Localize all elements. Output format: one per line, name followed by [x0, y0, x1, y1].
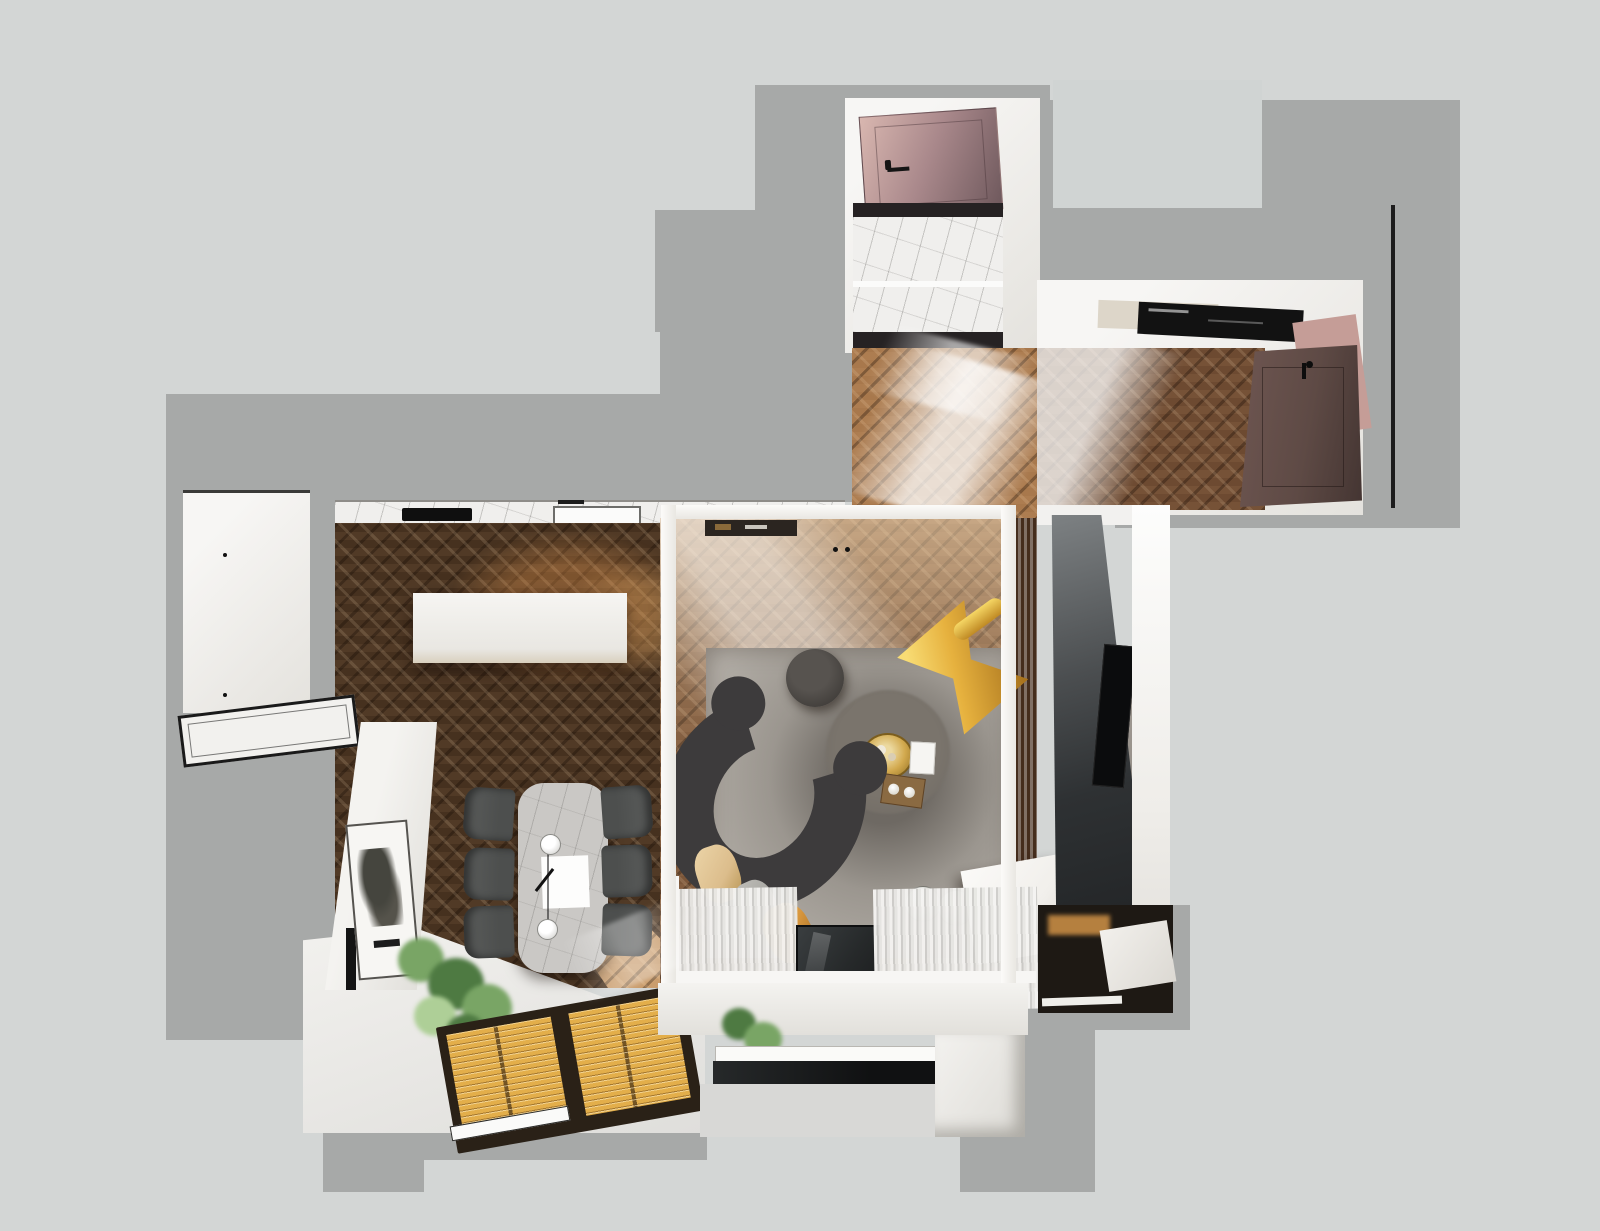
- entry-hall-floor: [852, 348, 1037, 520]
- hallway-floor: [1037, 348, 1265, 510]
- wall-mass-step1: [660, 330, 852, 396]
- balcony-right-wall: [935, 1035, 1025, 1137]
- wall-light-patch: [1053, 80, 1262, 208]
- glass-partition-top: [661, 505, 1016, 519]
- cabinet-shelf-edge: [1042, 996, 1122, 1007]
- wall-art-print: [356, 847, 405, 928]
- door-panel-line: [874, 119, 987, 206]
- dining-chair: [463, 847, 515, 901]
- candle: [887, 783, 899, 795]
- wall-column-right: [1363, 295, 1460, 515]
- door-handle-dot: [885, 160, 892, 170]
- floor-dot: [845, 547, 850, 552]
- sideboard: [705, 520, 797, 536]
- wall-edge-line: [1391, 205, 1395, 520]
- glass-partition-right: [1001, 505, 1016, 988]
- faucet-icon: [558, 500, 584, 504]
- wall-column-balcony2: [1048, 1030, 1095, 1140]
- cooktop: [402, 508, 472, 521]
- sideboard-decor: [715, 524, 731, 530]
- glass-partition-left: [661, 505, 676, 988]
- sun-streak: [1037, 348, 1205, 510]
- coffee-table-book: [909, 741, 936, 774]
- sun-streak: [852, 348, 1037, 520]
- storage-reflection: [1208, 319, 1263, 324]
- kitchen-left-wall: [183, 490, 310, 713]
- wall-dot: [223, 693, 227, 697]
- door-panel-line: [1262, 367, 1344, 487]
- dining-chair: [463, 905, 515, 959]
- pendant-lamp-globe: [537, 919, 558, 940]
- balcony-wall-band: [658, 983, 1028, 1035]
- marble-threshold-bottom: [853, 332, 1003, 348]
- bathroom-door: [859, 107, 1004, 218]
- dining-chair: [601, 903, 653, 957]
- entrance-door: [1240, 345, 1362, 507]
- candle: [903, 786, 915, 798]
- dining-chair: [462, 786, 516, 841]
- shower-lip: [853, 281, 1003, 287]
- wall-mass-step3: [755, 85, 852, 212]
- storage-reflection: [1148, 308, 1188, 313]
- wall-step-bottom-left: [323, 1157, 424, 1192]
- floor-dot: [833, 547, 838, 552]
- pendant-lamp-globe: [540, 834, 561, 855]
- sideboard-decor: [745, 525, 767, 529]
- tv-cabinet: [1038, 905, 1173, 1013]
- door-handle-dot: [1306, 361, 1313, 368]
- marble-threshold-top: [853, 203, 1003, 217]
- wall-mass-kitchen-top: [335, 394, 852, 502]
- apartment-render: [0, 0, 1600, 1231]
- wall-dot: [223, 553, 227, 557]
- curtain-rod: [664, 971, 1036, 983]
- kitchen-island: [413, 593, 627, 663]
- balcony-glass: [713, 1061, 938, 1084]
- glass-counter-inner-line: [188, 704, 351, 757]
- wall-art-caption-bar: [374, 939, 401, 948]
- wall-mass-step2: [655, 210, 852, 332]
- wall-block-bottom-right: [960, 1137, 1095, 1192]
- bathroom-marble-floor: [853, 217, 1003, 332]
- cabinet-drawer: [1100, 920, 1177, 992]
- pendant-cord: [547, 844, 549, 928]
